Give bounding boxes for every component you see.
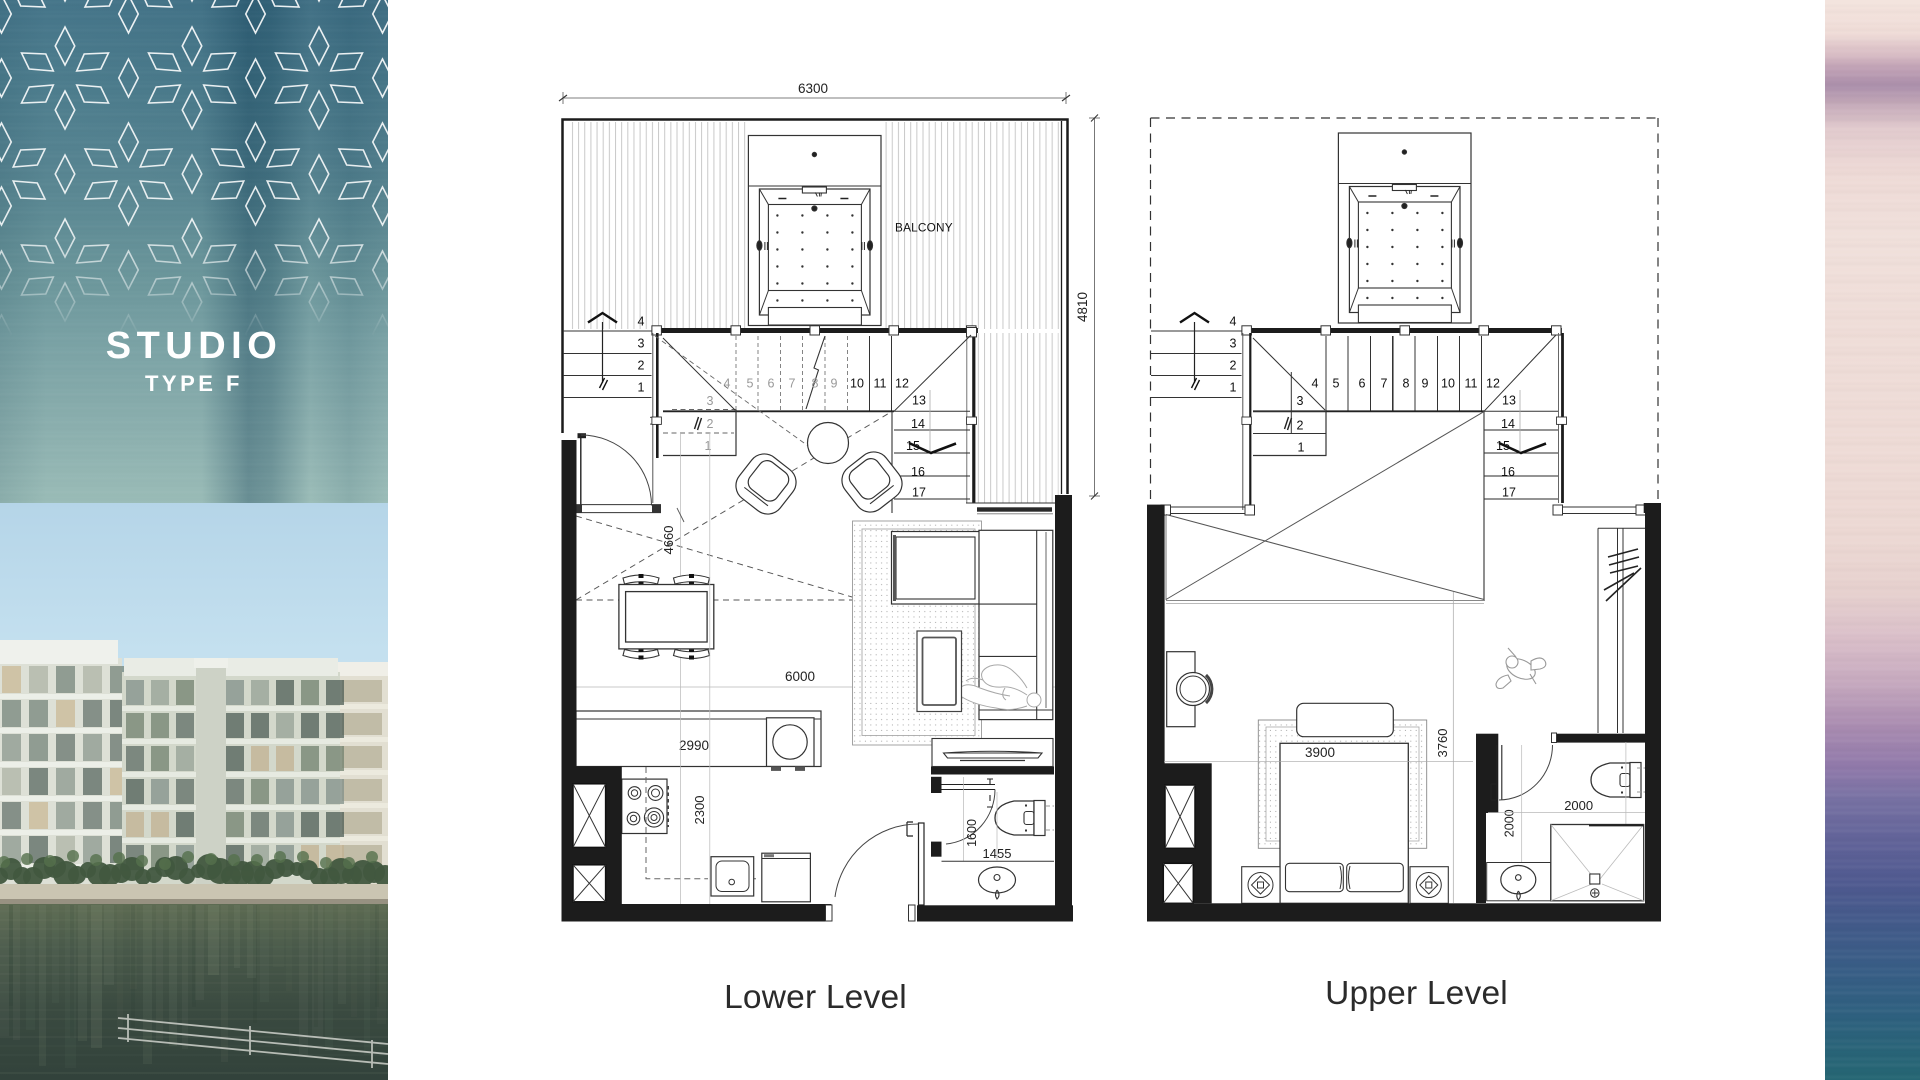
svg-text:7: 7 (1381, 377, 1388, 391)
svg-text:2300: 2300 (692, 796, 707, 825)
svg-text:17: 17 (912, 486, 926, 500)
svg-text:Lower Level: Lower Level (724, 979, 907, 1016)
svg-text:6300: 6300 (798, 81, 828, 96)
svg-text:4: 4 (724, 377, 731, 391)
svg-text:11: 11 (874, 377, 887, 391)
svg-text:5: 5 (747, 377, 754, 391)
svg-text:1: 1 (638, 381, 645, 395)
svg-text:2: 2 (1230, 359, 1237, 373)
svg-text:7: 7 (789, 377, 796, 391)
svg-text:10: 10 (850, 377, 864, 391)
svg-text:6: 6 (768, 377, 775, 391)
svg-text:4660: 4660 (661, 526, 676, 555)
svg-text:Upper Level: Upper Level (1325, 975, 1508, 1012)
svg-text:3: 3 (707, 394, 714, 408)
svg-text:4810: 4810 (1075, 292, 1090, 322)
svg-text:16: 16 (911, 465, 925, 479)
svg-text:4: 4 (1312, 377, 1319, 391)
svg-text:8: 8 (812, 377, 819, 391)
svg-text:1: 1 (705, 439, 712, 453)
svg-text:2: 2 (707, 417, 714, 431)
svg-text:9: 9 (1422, 377, 1429, 391)
svg-text:1600: 1600 (965, 819, 979, 847)
svg-text:3900: 3900 (1305, 745, 1335, 760)
svg-text:3: 3 (1297, 394, 1304, 408)
svg-text:3: 3 (1230, 337, 1237, 351)
svg-text:2: 2 (638, 359, 645, 373)
svg-text:1: 1 (1230, 381, 1237, 395)
svg-text:2000: 2000 (1564, 798, 1593, 813)
svg-text:6000: 6000 (785, 669, 815, 684)
svg-text:2: 2 (1297, 419, 1304, 433)
svg-text:BALCONY: BALCONY (895, 221, 953, 235)
svg-text:5: 5 (1333, 377, 1340, 391)
svg-text:3760: 3760 (1435, 729, 1450, 758)
svg-text:13: 13 (912, 394, 926, 408)
svg-text:8: 8 (1403, 377, 1410, 391)
svg-text:12: 12 (1486, 377, 1500, 391)
svg-text:2990: 2990 (679, 738, 709, 753)
svg-text:16: 16 (1501, 465, 1515, 479)
svg-text:1: 1 (1298, 441, 1305, 455)
svg-text:2000: 2000 (1502, 809, 1516, 837)
svg-text:4: 4 (638, 315, 645, 329)
svg-text:3: 3 (638, 337, 645, 351)
svg-text:4: 4 (1230, 315, 1237, 329)
svg-text:11: 11 (1465, 377, 1478, 391)
svg-text:6: 6 (1359, 377, 1366, 391)
svg-text:14: 14 (1501, 417, 1515, 431)
svg-text:10: 10 (1441, 377, 1455, 391)
svg-text:17: 17 (1502, 486, 1516, 500)
svg-text:12: 12 (895, 377, 909, 391)
svg-text:13: 13 (1502, 394, 1516, 408)
svg-text:14: 14 (911, 417, 925, 431)
svg-text:9: 9 (831, 377, 838, 391)
